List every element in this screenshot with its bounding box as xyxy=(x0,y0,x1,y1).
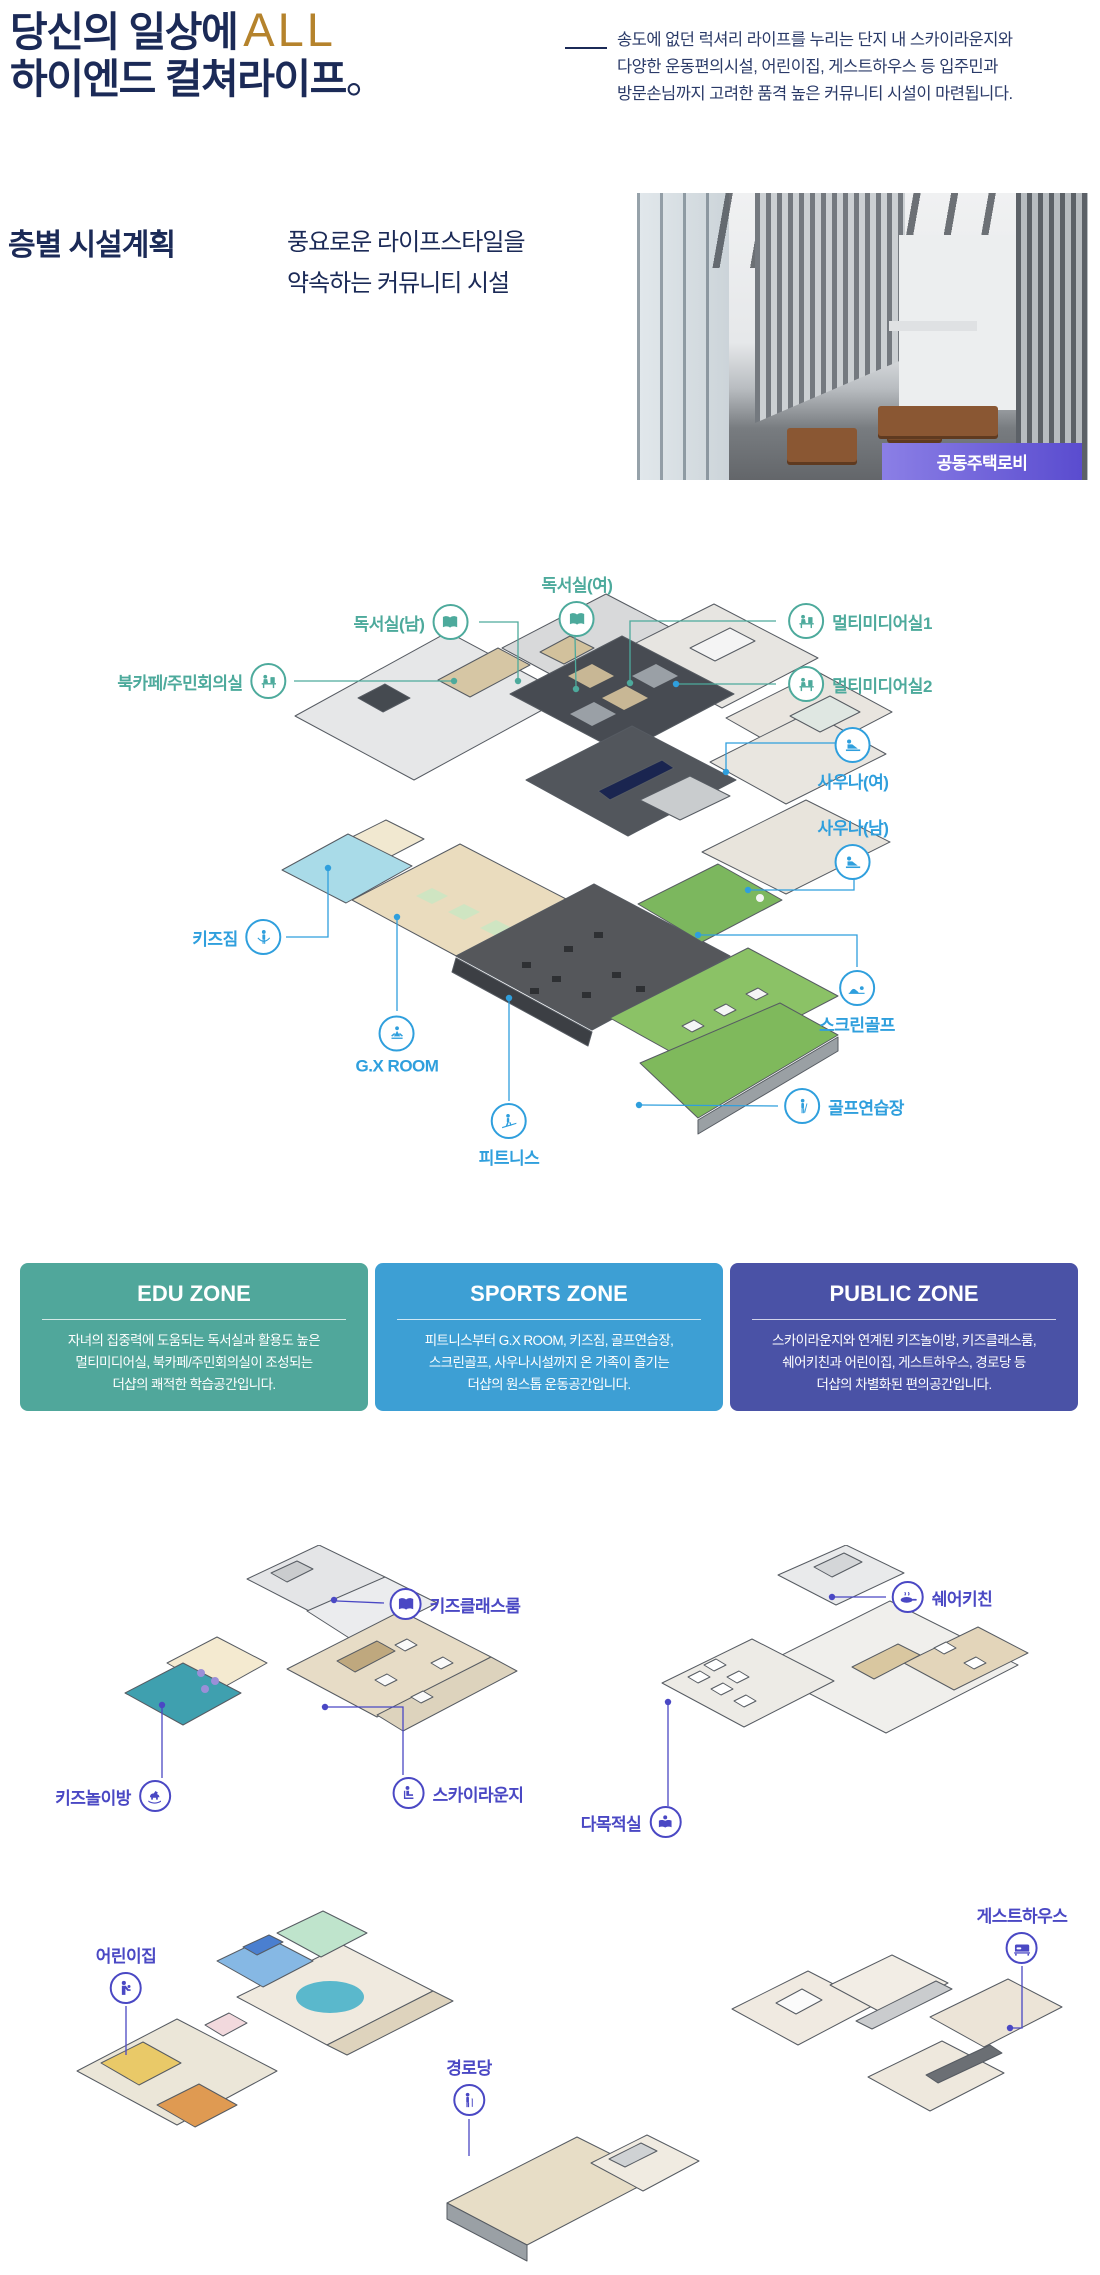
photo-louver-right xyxy=(1016,193,1088,480)
reading-person-icon xyxy=(649,1806,681,1838)
zone-description: 스카이라운지와 연계된 키즈놀이방, 키즈클래스룸,쉐어키친과 어린이집, 게스… xyxy=(730,1330,1078,1396)
bed-icon xyxy=(1006,1932,1038,1964)
section-subline: 약속하는 커뮤니티 시설 xyxy=(287,263,525,304)
book-icon xyxy=(559,601,595,637)
golf-green-icon xyxy=(839,970,875,1006)
label-text: 독서실(여) xyxy=(542,571,613,596)
label-share-kitchen: 쉐어키친 xyxy=(892,1581,993,1613)
photo-caption-badge: 공동주택로비 xyxy=(882,443,1082,480)
label-sauna-f: 사우나(여) xyxy=(818,727,889,793)
section-subheading: 풍요로운 라이프스타일을 약속하는 커뮤니티 시설 xyxy=(287,222,525,304)
label-bookcafe: 북카페/주민회의실 xyxy=(117,663,286,699)
page: 당신의 일상에ALL 하이엔드 컬쳐라이프。 송도에 없던 럭셔리 라이프를 누… xyxy=(0,0,1100,2275)
title-period: 。 xyxy=(346,56,386,102)
person-desk-icon xyxy=(788,603,824,639)
title-accent: ALL xyxy=(243,3,336,56)
label-multipurpose-room: 다목적실 xyxy=(581,1806,682,1838)
label-text: 스크린골프 xyxy=(819,1011,895,1036)
label-senior-center: 경로당 xyxy=(446,2054,491,2116)
section-subline: 풍요로운 라이프스타일을 xyxy=(287,222,525,263)
lounge-chair-icon xyxy=(393,1777,425,1809)
rocking-horse-icon xyxy=(139,1780,171,1812)
golfer-icon xyxy=(784,1088,820,1124)
label-text: 독서실(남) xyxy=(354,610,425,635)
zone-title: EDU ZONE xyxy=(20,1281,368,1307)
zone-divider xyxy=(42,1319,346,1320)
label-sauna-m: 사우나(남) xyxy=(818,814,889,880)
title-text: 당신의 일상에 xyxy=(10,9,237,55)
photo-sofa xyxy=(878,406,998,436)
yoga-icon xyxy=(379,1016,415,1052)
label-text: 골프연습장 xyxy=(828,1094,904,1119)
jump-rope-icon xyxy=(246,919,282,955)
share-kitchen-floor-plan xyxy=(600,1545,1080,1835)
zone-divider xyxy=(752,1319,1056,1320)
label-text: 어린이집 xyxy=(96,1942,157,1967)
label-fitness: 피트니스 xyxy=(479,1103,540,1169)
label-daycare: 어린이집 xyxy=(96,1942,157,2004)
mother-child-icon xyxy=(110,1972,142,2004)
photo-canopy xyxy=(889,321,977,331)
zone-description: 피트니스부터 G.X ROOM, 키즈짐, 골프연습장,스크린골프, 사우나시설… xyxy=(375,1330,723,1396)
label-gx-room: G.X ROOM xyxy=(356,1016,439,1077)
sports-zone-card: SPORTS ZONE 피트니스부터 G.X ROOM, 키즈짐, 골프연습장,… xyxy=(375,1263,723,1411)
label-text: 피트니스 xyxy=(479,1144,540,1169)
person-desk-icon xyxy=(788,666,824,702)
elderly-cane-icon xyxy=(453,2084,485,2116)
sauna-icon xyxy=(835,727,871,763)
person-desk-icon xyxy=(251,663,287,699)
edu-zone-card: EDU ZONE 자녀의 집중력에 도움되는 독서실과 활용도 높은멀티미디어실… xyxy=(20,1263,368,1411)
zone-description: 자녀의 집중력에 도움되는 독서실과 활용도 높은멀티미디어실, 북카페/주민회… xyxy=(20,1330,368,1396)
label-text: 멀티미디어실1 xyxy=(832,609,932,634)
photo-sofa xyxy=(787,428,857,462)
label-text: 스카이라운지 xyxy=(433,1781,524,1806)
label-text: 다목적실 xyxy=(581,1810,642,1835)
daycare-floor-plan xyxy=(25,1895,455,2225)
label-screen-golf: 스크린골프 xyxy=(819,970,895,1036)
label-kids-gym: 키즈짐 xyxy=(192,919,281,955)
page-title: 당신의 일상에ALL 하이엔드 컬쳐라이프。 xyxy=(10,4,385,103)
label-multimedia1: 멀티미디어실1 xyxy=(788,603,932,639)
intro-line: 송도에 없던 럭셔리 라이프를 누리는 단지 내 스카이라운지와 xyxy=(617,27,1013,54)
book-icon xyxy=(390,1588,422,1620)
label-reading-room-f: 독서실(여) xyxy=(542,571,613,637)
zone-title: SPORTS ZONE xyxy=(375,1281,723,1307)
intro-line: 다양한 운동편의시설, 어린이집, 게스트하우스 등 입주민과 xyxy=(617,54,1013,81)
label-text: 쉐어키친 xyxy=(932,1585,993,1610)
label-text: 키즈클래스룸 xyxy=(430,1592,521,1617)
label-reading-room-m: 독서실(남) xyxy=(354,604,469,640)
label-multimedia2: 멀티미디어실2 xyxy=(788,666,932,702)
intro-paragraph: 송도에 없던 럭셔리 라이프를 누리는 단지 내 스카이라운지와 다양한 운동편… xyxy=(617,27,1013,108)
public-zone-card: PUBLIC ZONE 스카이라운지와 연계된 키즈놀이방, 키즈클래스룸,쉐어… xyxy=(730,1263,1078,1411)
label-sky-lounge: 스카이라운지 xyxy=(393,1777,524,1809)
label-guesthouse: 게스트하우스 xyxy=(977,1902,1068,1964)
label-kids-playroom: 키즈놀이방 xyxy=(55,1780,171,1812)
intro-line: 방문손님까지 고려한 품격 높은 커뮤니티 시설이 마련됩니다. xyxy=(617,81,1013,108)
label-golf-range: 골프연습장 xyxy=(784,1088,904,1124)
intro-dash xyxy=(565,47,607,49)
label-text: 사우나(여) xyxy=(818,768,889,793)
label-text: 멀티미디어실2 xyxy=(832,672,932,697)
frying-pan-icon xyxy=(892,1581,924,1613)
photo-louver-center xyxy=(755,193,905,423)
label-text: 경로당 xyxy=(446,2054,491,2079)
senior-center-floor-plan xyxy=(395,2115,705,2275)
label-kids-classroom: 키즈클래스룸 xyxy=(390,1588,521,1620)
label-text: 게스트하우스 xyxy=(977,1902,1068,1927)
label-text: 북카페/주민회의실 xyxy=(117,669,242,694)
section-heading: 층별 시설계획 xyxy=(8,220,175,264)
sauna-icon xyxy=(835,844,871,880)
lobby-photo: 공동주택로비 xyxy=(637,193,1088,480)
zone-title: PUBLIC ZONE xyxy=(730,1281,1078,1307)
zone-divider xyxy=(397,1319,701,1320)
title-line2: 하이엔드 컬쳐라이프 xyxy=(10,56,346,102)
label-text: 키즈놀이방 xyxy=(55,1784,131,1809)
treadmill-icon xyxy=(491,1103,527,1139)
label-text: G.X ROOM xyxy=(356,1057,439,1077)
book-icon xyxy=(432,604,468,640)
label-text: 사우나(남) xyxy=(818,814,889,839)
label-text: 키즈짐 xyxy=(192,925,237,950)
